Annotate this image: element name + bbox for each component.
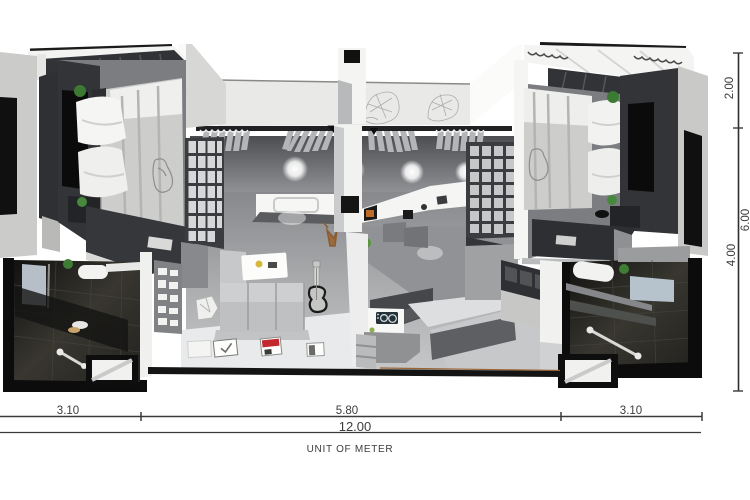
svg-text:12.00: 12.00 bbox=[339, 419, 372, 434]
svg-text:3.10: 3.10 bbox=[57, 405, 79, 417]
svg-text:4.00: 4.00 bbox=[726, 244, 738, 266]
svg-text:5.80: 5.80 bbox=[336, 405, 358, 417]
svg-text:3.10: 3.10 bbox=[620, 405, 642, 417]
svg-text:6.00: 6.00 bbox=[740, 209, 750, 231]
svg-text:UNIT OF METER: UNIT OF METER bbox=[307, 444, 394, 455]
svg-text:2.00: 2.00 bbox=[724, 77, 736, 99]
